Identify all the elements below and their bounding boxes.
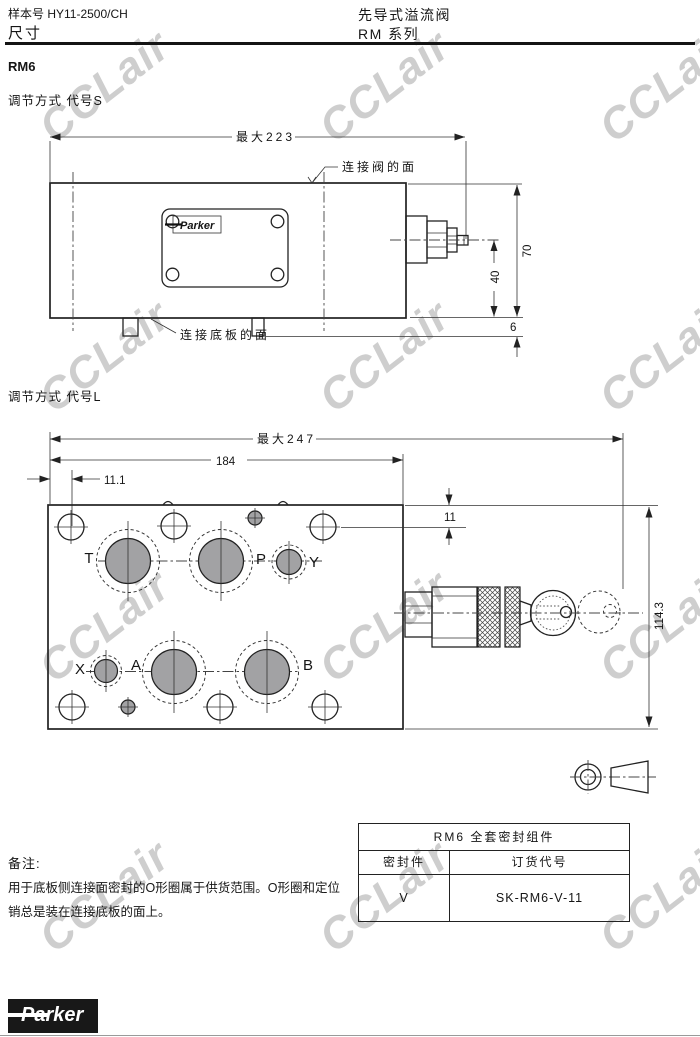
port-X: X — [75, 650, 122, 692]
dim-label-max247: 最大247 — [257, 432, 316, 446]
dim-label-40: 40 — [490, 271, 502, 284]
remarks-line1: 用于底板侧连接面密封的O形圈属于供货范围。O形圈和定位 — [8, 876, 353, 900]
projection-symbol — [570, 760, 656, 794]
parker-logo: Parker — [8, 999, 98, 1033]
port-label-A: A — [131, 657, 141, 674]
port-T: T — [84, 521, 159, 601]
port-A: A — [131, 631, 206, 713]
remarks-title: 备注: — [8, 852, 353, 876]
locating-pin-left — [123, 318, 138, 336]
order-code-value: SK-RM6-V-11 — [449, 875, 629, 921]
port-label-X: X — [75, 661, 85, 678]
port-label-P: P — [256, 551, 266, 568]
dim-184: 184 — [50, 432, 403, 504]
nameplate-brand: Parker — [180, 220, 215, 232]
dim-label-114-3: 114.3 — [654, 602, 666, 630]
remarks-line2: 销总是装在连接底板的面上。 — [8, 900, 353, 924]
port-label-T: T — [84, 550, 93, 567]
dim-11: 11 — [444, 488, 456, 545]
seal-table-row: V SK-RM6-V-11 — [359, 874, 629, 921]
seal-kit-table: RM6 全套密封组件 密封件 订货代号 V SK-RM6-V-11 — [358, 823, 630, 922]
dim-114-3: 114.3 — [649, 507, 666, 727]
dim-label-184: 184 — [216, 456, 236, 468]
dim-label-11-1: 11.1 — [104, 475, 126, 487]
dim-11-1: 11.1 — [27, 470, 126, 526]
product-title: 先导式溢流阀 — [358, 5, 451, 25]
catalog-page: CCLair CCLair CCLair CCLair CCLair CCLai… — [0, 0, 700, 1037]
lock-adjuster — [394, 587, 643, 647]
port-Y: Y — [272, 541, 319, 584]
seal-table-col-seal: 密封件 — [359, 851, 449, 874]
drawing-code-l: 最大247 184 11.1 — [27, 432, 666, 729]
seal-table-title: RM6 全套密封组件 — [359, 824, 629, 850]
page-bottom-rule — [0, 1035, 700, 1036]
dim-label-6: 6 — [510, 322, 516, 334]
drawing-code-s: 最大223 Parker — [50, 130, 534, 357]
valve-face-label: 连接阀的面 — [342, 159, 417, 174]
port-label-B: B — [303, 657, 313, 674]
valve-body-outline — [50, 183, 406, 318]
key-swing-circle — [578, 591, 620, 633]
remarks-block: 备注: 用于底板侧连接面密封的O形圈属于供货范围。O形圈和定位 销总是装在连接底… — [8, 852, 353, 924]
port-B: B — [236, 631, 314, 713]
dim-label-11: 11 — [444, 512, 456, 524]
dim-max223: 最大223 — [50, 130, 466, 239]
seal-value: V — [359, 875, 449, 921]
mounting-holes — [54, 509, 342, 724]
catalog-number: 样本号 HY11-2500/CH — [8, 5, 128, 22]
section-heading-l: 调节方式 代号L — [8, 386, 101, 405]
parker-logo-text: Parker — [21, 1004, 83, 1027]
section-heading-s: 调节方式 代号S — [8, 90, 103, 109]
dim-label-max223: 最大223 — [236, 130, 295, 144]
seal-table-col-code: 订货代号 — [449, 851, 629, 874]
subplate-face-label: 连接底板的面 — [180, 327, 270, 342]
page-title: 尺寸 — [8, 22, 42, 43]
model-label: RM6 — [8, 59, 35, 74]
dim-70: 70 — [517, 185, 534, 317]
valve-nameplate: Parker — [162, 209, 288, 287]
header-rule — [5, 42, 695, 45]
dim-6: 6 — [510, 322, 517, 357]
series-title: RM 系列 — [358, 24, 419, 44]
adjustment-screw — [390, 216, 500, 263]
dim-label-70: 70 — [522, 245, 534, 258]
dim-40: 40 — [490, 241, 502, 317]
port-label-Y: Y — [309, 554, 319, 571]
